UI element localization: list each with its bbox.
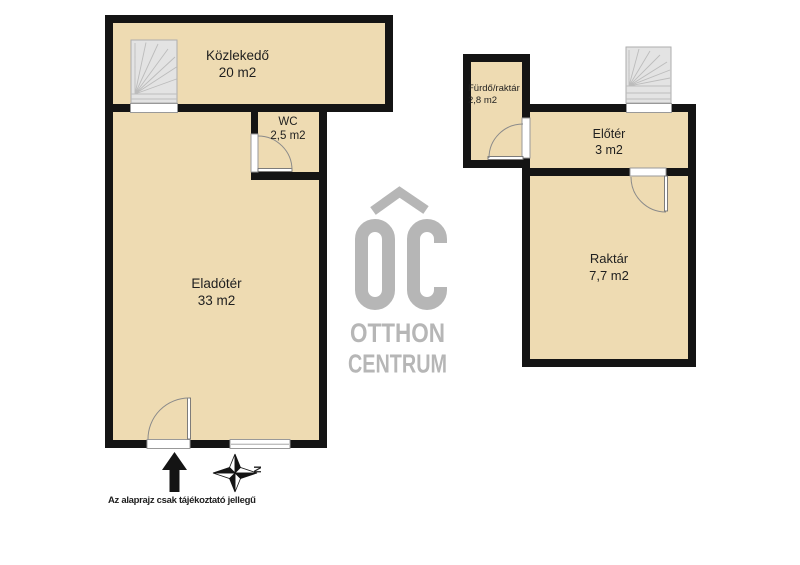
room-label-raktar: Raktár 7,7 m2 — [530, 250, 688, 284]
logo-letter-o — [362, 226, 389, 304]
stair-opening-left — [131, 104, 178, 113]
room-name: Eladótér — [129, 275, 304, 292]
room-label-kozlekedo: Közlekedő 20 m2 — [150, 47, 325, 81]
floorplan-canvas: OTTHON CENTRUM Közlekedő 20 m2 WC 2,5 m2… — [0, 0, 800, 565]
room-area: 2,8 m2 — [468, 95, 520, 107]
logo-roof-icon — [373, 192, 426, 211]
disclaimer-text: Az alaprajz csak tájékoztató jellegű — [108, 495, 256, 506]
room-label-eloter: Előtér 3 m2 — [530, 126, 688, 158]
room-label-furdo: Fürdő/raktár 2,8 m2 — [468, 83, 520, 107]
stair-opening-right — [627, 104, 672, 113]
room-name: Fürdő/raktár — [468, 83, 520, 95]
window-icon — [230, 440, 290, 449]
room-area: 3 m2 — [530, 142, 688, 158]
room-name: WC — [255, 115, 321, 129]
staircase-icon-right — [626, 47, 672, 113]
raktar-door — [630, 168, 668, 212]
compass-north-label: N — [251, 466, 262, 473]
room-label-eladoter: Eladótér 33 m2 — [129, 275, 304, 309]
entrance-door — [147, 398, 191, 449]
room-name: Közlekedő — [150, 47, 325, 64]
logo-letter-c-gap — [433, 243, 451, 287]
room-area: 20 m2 — [150, 64, 325, 81]
room-area: 2,5 m2 — [255, 129, 321, 143]
logo-word-otthon: OTTHON — [350, 318, 445, 348]
otthon-centrum-logo: OTTHON CENTRUM — [348, 192, 451, 379]
room-area: 7,7 m2 — [530, 267, 688, 284]
room-name: Raktár — [530, 250, 688, 267]
furdo-door — [488, 118, 530, 160]
logo-word-centrum: CENTRUM — [348, 349, 447, 379]
room-name: Előtér — [530, 126, 688, 142]
room-label-wc: WC 2,5 m2 — [255, 115, 321, 143]
entrance-arrow-icon — [162, 452, 187, 492]
room-area: 33 m2 — [129, 292, 304, 309]
